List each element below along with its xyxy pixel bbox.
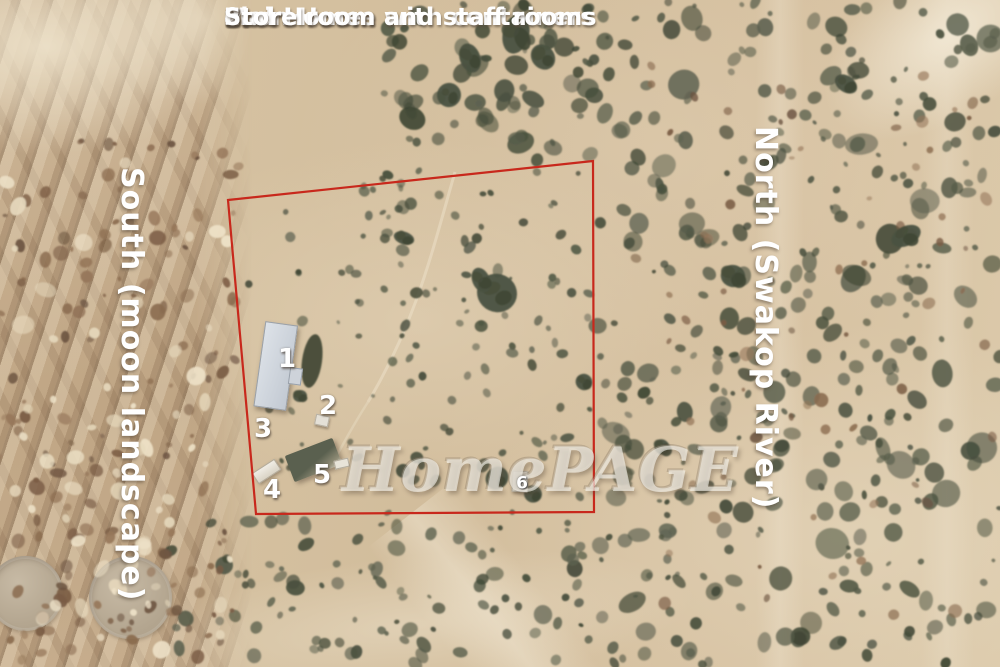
legend-item-label: Store room and staff rooms [224,4,597,31]
map-marker: 5 [313,462,331,488]
map-marker: 3 [254,416,272,442]
map-marker: 4 [263,477,281,503]
south-label: South (moon landscape) [114,167,149,602]
map-marker: 6 [516,476,528,493]
north-label: North (Swakop River) [748,126,783,509]
map-marker: 1 [278,346,296,372]
map-marker: 2 [319,393,337,419]
aerial-property-photo: HomePAGE 123456 1. Main Home 2. Flat 3. … [0,0,1000,667]
markers-layer: 123456 [0,0,1000,667]
